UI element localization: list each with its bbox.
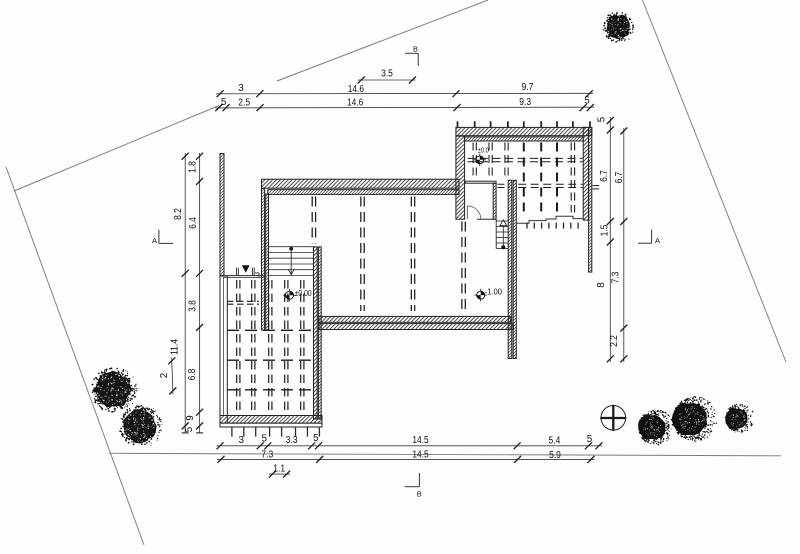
- svg-text:±0.00: ±0.00: [295, 289, 312, 298]
- svg-text:14.5: 14.5: [412, 435, 429, 446]
- svg-text:5.9: 5.9: [549, 450, 561, 461]
- svg-text:3: 3: [238, 435, 244, 446]
- svg-text:5: 5: [313, 433, 319, 444]
- svg-text:1.8: 1.8: [188, 161, 199, 173]
- svg-text:5: 5: [184, 426, 195, 432]
- svg-text:3.5: 3.5: [381, 68, 393, 79]
- svg-text:B: B: [413, 45, 418, 54]
- svg-text:6.7: 6.7: [614, 172, 625, 184]
- svg-text:9.7: 9.7: [522, 82, 534, 93]
- svg-text:5: 5: [587, 434, 593, 445]
- svg-text:7.3: 7.3: [611, 271, 622, 283]
- svg-text:9: 9: [185, 415, 196, 420]
- svg-text:9.3: 9.3: [519, 97, 531, 108]
- svg-text:2.5: 2.5: [238, 97, 250, 108]
- svg-text:B: B: [417, 489, 422, 498]
- svg-text:5: 5: [584, 95, 590, 106]
- svg-text:A: A: [655, 236, 660, 245]
- svg-text:6.8: 6.8: [187, 368, 198, 380]
- svg-text:3.8: 3.8: [188, 300, 199, 312]
- svg-text:14.5: 14.5: [412, 449, 429, 460]
- svg-text:1.5: 1.5: [599, 224, 610, 236]
- svg-text:11.4: 11.4: [170, 338, 181, 355]
- svg-text:A: A: [152, 236, 157, 245]
- svg-text:8.2: 8.2: [173, 208, 184, 220]
- svg-text:-1.00: -1.00: [485, 287, 503, 296]
- svg-text:5: 5: [597, 116, 608, 122]
- svg-text:5: 5: [261, 434, 267, 445]
- svg-text:±0.0: ±0.0: [478, 146, 489, 155]
- svg-text:8: 8: [596, 282, 607, 288]
- svg-text:2.2: 2.2: [609, 335, 620, 347]
- svg-text:3.3: 3.3: [286, 435, 298, 446]
- svg-text:2: 2: [159, 373, 170, 378]
- svg-text:7.3: 7.3: [261, 449, 273, 460]
- svg-text:1.1: 1.1: [273, 463, 285, 474]
- svg-text:6.4: 6.4: [188, 217, 199, 229]
- svg-text:5: 5: [221, 97, 227, 108]
- svg-text:14.6: 14.6: [347, 98, 364, 109]
- svg-text:3: 3: [238, 83, 244, 94]
- svg-text:5.4: 5.4: [549, 436, 561, 447]
- svg-text:14.6: 14.6: [348, 84, 365, 95]
- svg-text:6.7: 6.7: [599, 170, 610, 182]
